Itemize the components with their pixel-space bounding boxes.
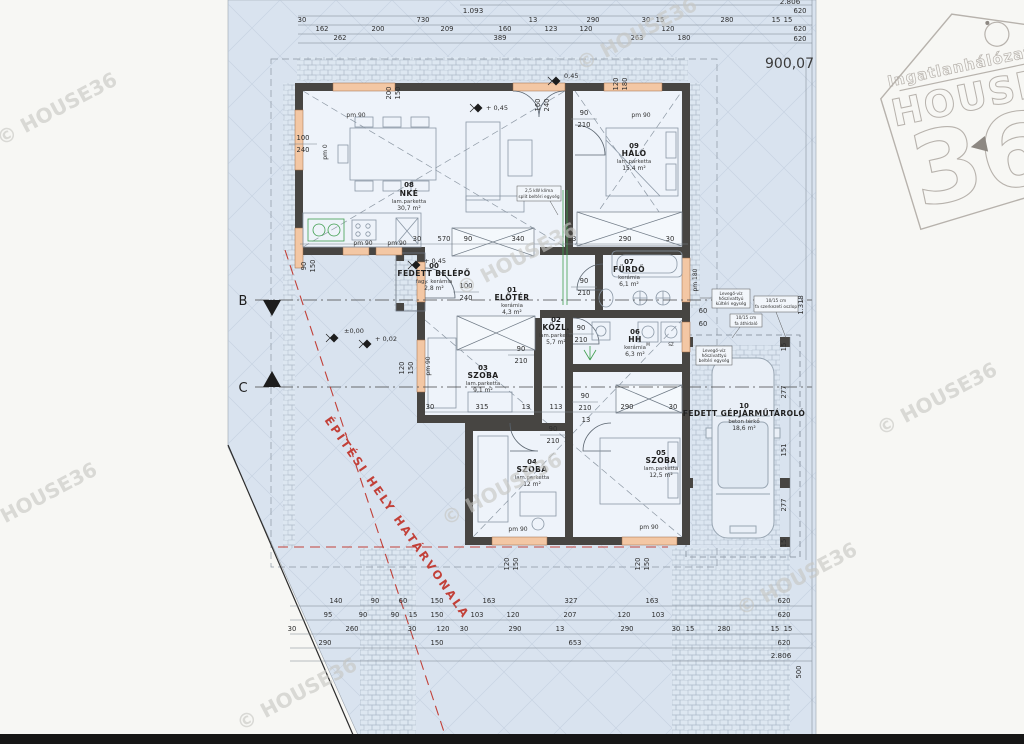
svg-text:210: 210 [578,289,591,297]
svg-text:15: 15 [780,343,788,352]
svg-text:90: 90 [577,324,586,332]
svg-text:120: 120 [580,25,593,33]
svg-text:120: 120 [612,78,620,91]
svg-text:90: 90 [580,277,589,285]
svg-text:5,7 m²: 5,7 m² [546,339,566,346]
svg-text:280: 280 [721,16,734,24]
scan-edge [0,734,1024,744]
washer-label: M [646,342,650,347]
svg-text:pm 90: pm 90 [346,112,365,119]
svg-text:9,1 m²: 9,1 m² [473,387,493,394]
svg-text:207: 207 [564,611,577,619]
svg-text:209: 209 [441,25,454,33]
svg-text:150: 150 [431,639,444,647]
svg-text:620: 620 [778,611,791,619]
svg-text:150: 150 [394,87,402,100]
svg-text:2,5 kW klíma: 2,5 kW klíma [525,187,553,194]
svg-text:30: 30 [426,403,435,411]
svg-text:pm 90: pm 90 [387,240,406,247]
svg-text:pm 90: pm 90 [353,240,372,247]
svg-text:60: 60 [699,320,708,328]
svg-text:pm 90: pm 90 [639,524,658,531]
svg-text:10/15 cm: 10/15 cm [766,298,786,304]
svg-text:30: 30 [669,403,678,411]
svg-text:260: 260 [346,625,359,633]
svg-text:30: 30 [408,625,417,633]
svg-text:100: 100 [297,134,310,142]
svg-text:2.806: 2.806 [771,651,792,660]
svg-text:290: 290 [619,235,632,243]
svg-text:210: 210 [578,121,591,129]
svg-text:pm 90: pm 90 [631,112,650,119]
svg-text:30: 30 [413,235,422,243]
svg-text:© HOUSE36: © HOUSE36 [0,67,121,151]
svg-text:NKÉ: NKÉ [400,189,419,198]
svg-text:290: 290 [509,625,522,633]
svg-text:163: 163 [646,597,659,605]
svg-text:© HOUSE36: © HOUSE36 [872,357,1001,441]
svg-text:240: 240 [297,146,310,154]
svg-text:13: 13 [529,16,538,24]
svg-text:30: 30 [298,16,307,24]
svg-text:4,3 m²: 4,3 m² [502,309,522,316]
svg-text:150: 150 [431,597,444,605]
svg-text:150: 150 [643,558,651,571]
svg-text:SZOBA: SZOBA [467,371,498,380]
svg-text:327: 327 [565,597,578,605]
svg-text:277: 277 [780,386,788,399]
svg-text:30,7 m²: 30,7 m² [397,205,421,212]
svg-text:6,1 m²: 6,1 m² [619,281,639,288]
svg-text:ELŐTÉR: ELŐTÉR [494,293,529,302]
svg-text:0,45: 0,45 [564,72,578,80]
svg-text:120: 120 [437,625,450,633]
svg-text:160: 160 [499,25,512,33]
svg-text:160: 160 [534,99,542,112]
svg-text:Levegő-víz: Levegő-víz [703,347,727,354]
svg-text:103: 103 [652,611,665,619]
svg-text:13: 13 [522,403,531,411]
svg-text:fa szerkezeti oszlop: fa szerkezeti oszlop [755,304,797,310]
svg-text:163: 163 [483,597,496,605]
svg-text:kerámia: kerámia [501,302,523,309]
svg-text:90: 90 [580,109,589,117]
svg-text:15: 15 [784,16,793,24]
svg-text:13: 13 [582,416,591,424]
svg-text:18,6 m²: 18,6 m² [732,425,756,432]
svg-text:KÖZL.: KÖZL. [542,323,569,332]
svg-text:SZOBA: SZOBA [645,456,676,465]
svg-text:90: 90 [391,611,400,619]
svg-text:13: 13 [556,625,565,633]
svg-text:kerámia: kerámia [618,274,640,281]
svg-text:kerámia: kerámia [624,344,646,351]
svg-text:200: 200 [385,87,393,100]
svg-text:200: 200 [372,25,385,33]
svg-text:150: 150 [309,260,317,273]
svg-text:pm 0: pm 0 [322,144,329,160]
dryer-label: SZ [668,342,674,347]
svg-text:180: 180 [678,34,691,42]
svg-text:30: 30 [672,625,681,633]
svg-text:Levegő-víz: Levegő-víz [720,290,744,297]
svg-text:280: 280 [718,625,731,633]
section-marker-c: C [238,381,247,396]
svg-text:180: 180 [621,78,629,91]
svg-text:hőszivattyú: hőszivattyú [719,295,744,302]
svg-text:90: 90 [464,235,473,243]
svg-text:08: 08 [404,181,414,189]
house36-logo: Ingatlanhálózat HOUSE 36 [867,0,1024,234]
svg-text:90: 90 [359,611,368,619]
svg-text:90: 90 [300,262,308,271]
svg-text:30: 30 [666,235,675,243]
svg-text:© HOUSE36: © HOUSE36 [0,457,101,541]
car [706,358,780,538]
svg-text:120: 120 [618,611,631,619]
svg-text:90: 90 [371,597,380,605]
svg-text:90: 90 [549,425,558,433]
svg-text:290: 290 [587,16,600,24]
svg-text:12,5 m²: 12,5 m² [649,472,673,479]
svg-text:pm 90: pm 90 [508,526,527,533]
svg-text:60: 60 [399,597,408,605]
svg-text:570: 570 [438,235,451,243]
svg-text:262: 262 [334,34,347,42]
svg-text:140: 140 [330,597,343,605]
svg-text:113: 113 [550,403,563,411]
svg-text:389: 389 [494,34,507,42]
svg-text:151: 151 [780,444,788,457]
svg-text:120: 120 [634,558,642,571]
floor-plan-drawing: B C ÉPÍTÉSI HELY HATÁRVONALA 1.093 2.806… [0,0,1024,744]
svg-text:split beltéri egység: split beltéri egység [518,193,559,200]
svg-text:±0,00: ±0,00 [344,327,364,335]
svg-text:hőszivattyú: hőszivattyú [702,352,727,359]
svg-text:315: 315 [476,403,489,411]
svg-text:620: 620 [778,639,791,647]
svg-text:15,4 m²: 15,4 m² [622,165,646,172]
svg-text:210: 210 [547,437,560,445]
svg-text:15: 15 [780,539,788,548]
dim-label: 620 [794,35,807,43]
svg-text:90: 90 [581,392,590,400]
svg-text:pm 180: pm 180 [692,268,699,291]
plot-number: 900,07 [765,56,814,72]
svg-text:15: 15 [771,625,780,633]
svg-text:30: 30 [288,625,297,633]
svg-text:277: 277 [780,499,788,512]
svg-text:500: 500 [795,666,803,679]
dim-label: 620 [794,7,807,15]
svg-text:290: 290 [319,639,332,647]
svg-text:30: 30 [460,625,469,633]
svg-text:15: 15 [784,625,793,633]
svg-text:290: 290 [621,403,634,411]
svg-text:290: 290 [621,625,634,633]
svg-text:210: 210 [515,357,528,365]
svg-text:6,3 m²: 6,3 m² [625,351,645,358]
svg-text:120: 120 [503,558,511,571]
svg-text:fa áthidaló: fa áthidaló [735,320,758,327]
svg-text:123: 123 [545,25,558,33]
svg-text:pm 90: pm 90 [425,356,432,375]
note-heatpump-indoor: Levegő-víz hőszivattyú beltéri egység [696,346,732,365]
svg-text:210: 210 [575,336,588,344]
svg-text:beltéri egység: beltéri egység [699,357,730,364]
svg-text:653: 653 [569,639,582,647]
svg-text:150: 150 [431,611,444,619]
svg-text:kültéri egység: kültéri egység [716,300,747,307]
svg-text:15: 15 [686,625,695,633]
section-marker-b: B [239,294,248,309]
svg-text:HH: HH [628,335,642,344]
scanned-floor-plan-page: B C ÉPÍTÉSI HELY HATÁRVONALA 1.093 2.806… [0,0,1024,744]
svg-text:FEDETT GÉPJÁRMŰTÁROLÓ: FEDETT GÉPJÁRMŰTÁROLÓ [683,409,806,418]
svg-text:120: 120 [507,611,520,619]
svg-text:60: 60 [699,307,708,315]
svg-text:FÜRDŐ: FÜRDŐ [613,265,645,274]
svg-text:210: 210 [579,404,592,412]
svg-text:15: 15 [409,611,418,619]
dim-label: 620 [794,25,807,33]
svg-text:HÁLÓ: HÁLÓ [622,149,647,158]
svg-text:730: 730 [417,16,430,24]
dim-label: 2.806 [780,0,801,6]
svg-text:10/15 cm: 10/15 cm [736,315,756,321]
svg-text:240: 240 [543,99,551,112]
svg-text:beton térkő: beton térkő [728,418,759,425]
svg-text:103: 103 [471,611,484,619]
svg-text:162: 162 [316,25,329,33]
svg-text:90: 90 [517,345,526,353]
svg-text:fagy. kerámia: fagy. kerámia [416,278,452,285]
dim-label: 1.093 [463,6,484,15]
svg-text:120: 120 [398,362,406,375]
svg-text:2,8 m²: 2,8 m² [424,285,444,292]
svg-text:150: 150 [407,362,415,375]
svg-text:15: 15 [772,16,781,24]
svg-text:150: 150 [512,558,520,571]
svg-text:+ 0,45: + 0,45 [486,104,508,112]
svg-text:95: 95 [324,611,333,619]
svg-text:+ 0,02: + 0,02 [375,335,397,343]
